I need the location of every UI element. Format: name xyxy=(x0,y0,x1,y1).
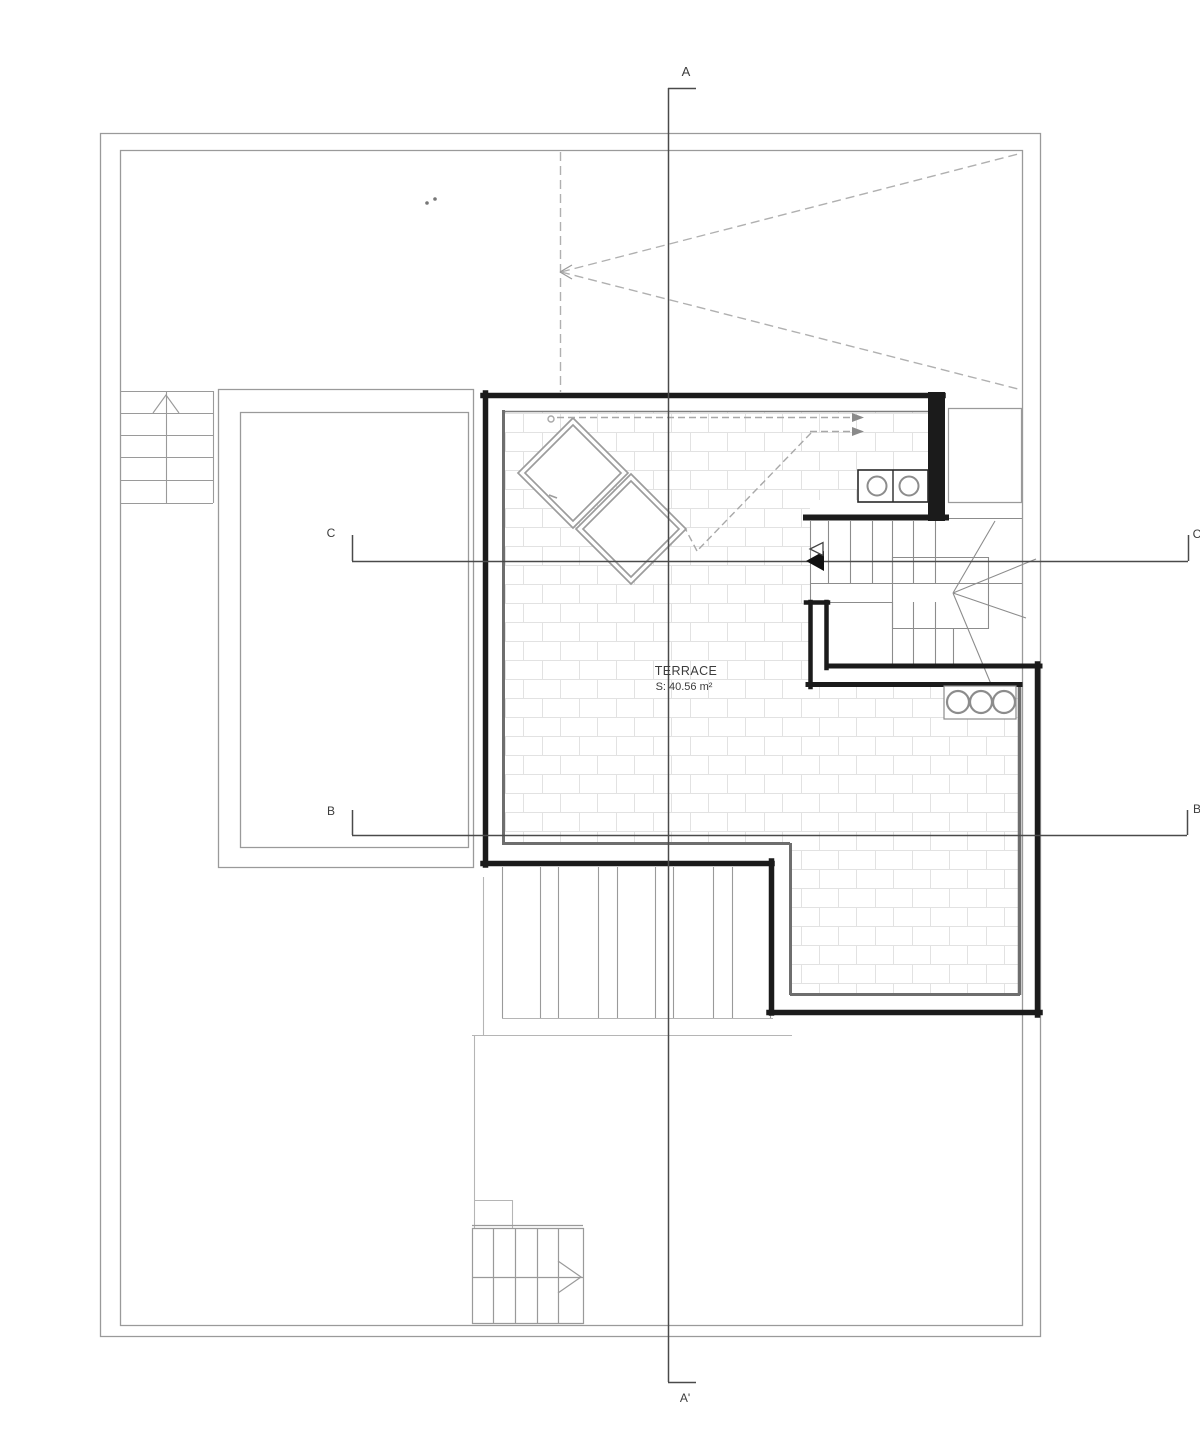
floor-plan-canvas: A A' C C B B TERRACE S: 40.56 m² xyxy=(0,0,1200,1451)
burner-icon xyxy=(970,691,992,713)
winder-staircase xyxy=(810,519,1036,685)
basin-icon xyxy=(868,477,887,496)
room-name-label: TERRACE xyxy=(655,664,718,678)
walkway-lines xyxy=(472,877,792,1228)
section-label-a-bottom: A' xyxy=(680,1391,690,1405)
pool-court xyxy=(219,390,474,868)
section-label-c-left: C xyxy=(327,526,336,540)
sink-counter xyxy=(858,470,928,502)
section-label-a-top: A xyxy=(682,64,691,79)
lower-exterior-stair xyxy=(502,867,773,1019)
section-cut-arrow-outline-icon xyxy=(810,543,823,556)
drawing-specks xyxy=(425,197,437,205)
triple-fixture xyxy=(944,686,1016,719)
roof-slope-dashed xyxy=(561,152,1023,392)
burner-icon xyxy=(947,691,969,713)
section-label-c-right: C xyxy=(1193,527,1200,541)
section-label-b-right: B xyxy=(1193,802,1200,816)
basin-icon xyxy=(900,477,919,496)
section-label-b-left: B xyxy=(327,804,335,818)
bottom-stair xyxy=(472,1226,584,1324)
upper-right-room xyxy=(949,409,1022,503)
burner-icon xyxy=(993,691,1015,713)
terrace-wall-band xyxy=(928,392,945,521)
room-area-label: S: 40.56 m² xyxy=(656,681,713,693)
left-exterior-stair xyxy=(120,391,214,504)
floor-plan-drawing: A A' C C B B TERRACE S: 40.56 m² xyxy=(0,0,1200,1451)
